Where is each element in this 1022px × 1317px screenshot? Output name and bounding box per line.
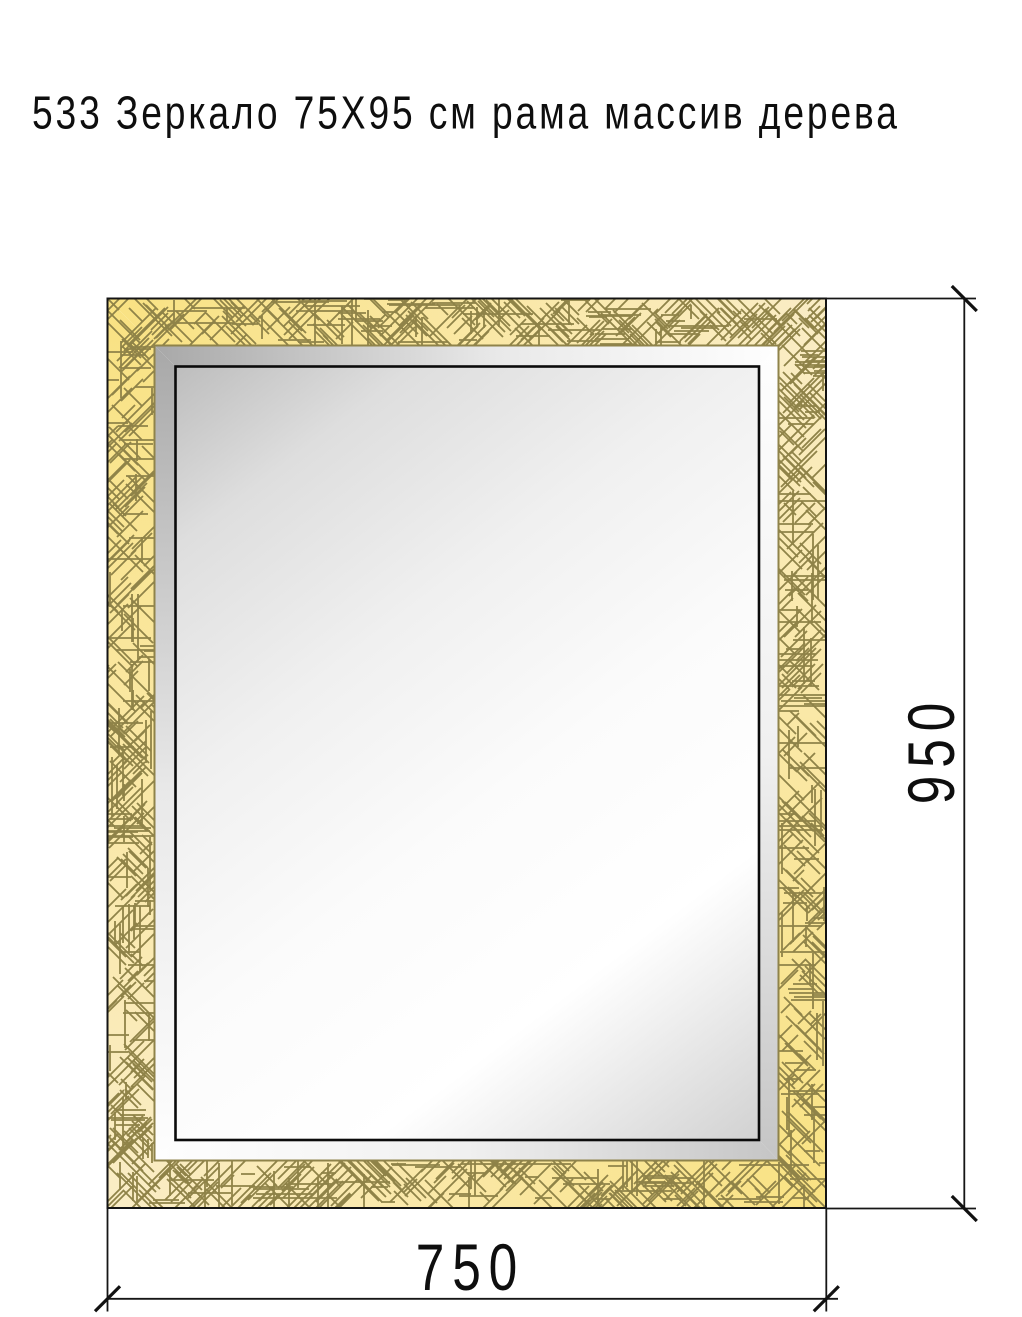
svg-text:950: 950 bbox=[894, 695, 969, 804]
svg-text:533 Зеркало 75Х95 см рама масс: 533 Зеркало 75Х95 см рама массив дерева bbox=[32, 87, 900, 139]
svg-text:750: 750 bbox=[416, 1230, 525, 1305]
